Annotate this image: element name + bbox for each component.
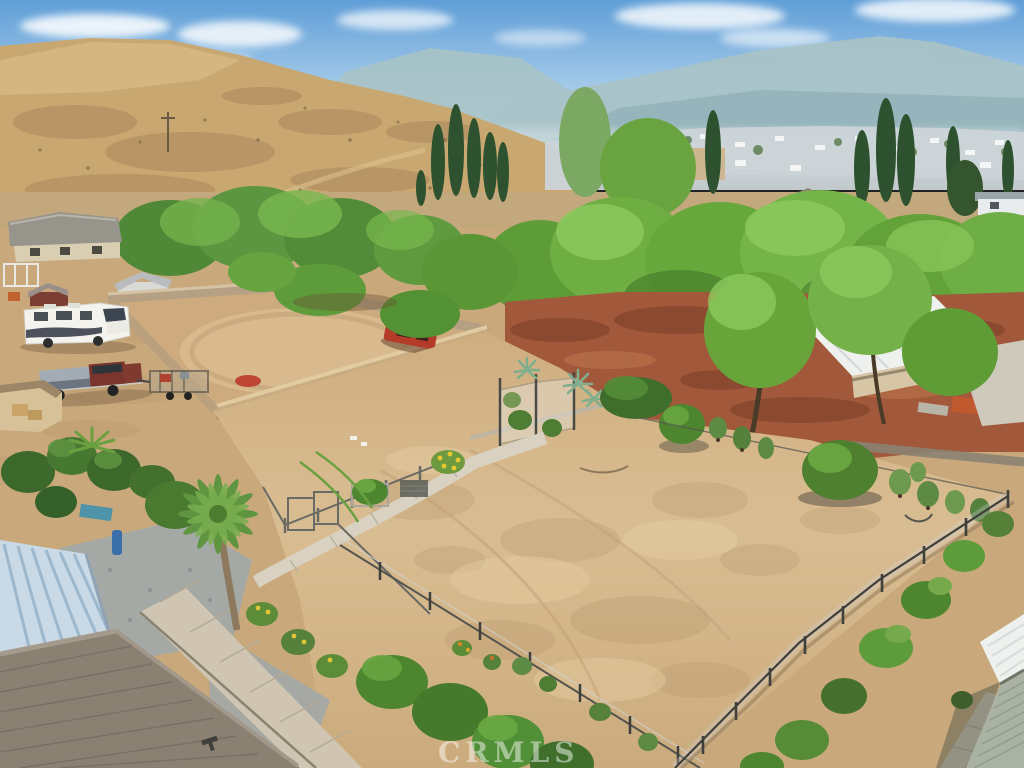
red-car-roof xyxy=(235,375,261,387)
orange-machine xyxy=(8,292,20,301)
aerial-photo: CRMLS xyxy=(0,0,1024,768)
rv-motorhome xyxy=(20,303,136,354)
yellow-flower-bush xyxy=(431,450,465,474)
shed-bottom-left xyxy=(0,380,62,432)
watermark: CRMLS xyxy=(438,736,579,768)
house-far-right xyxy=(975,192,1024,215)
